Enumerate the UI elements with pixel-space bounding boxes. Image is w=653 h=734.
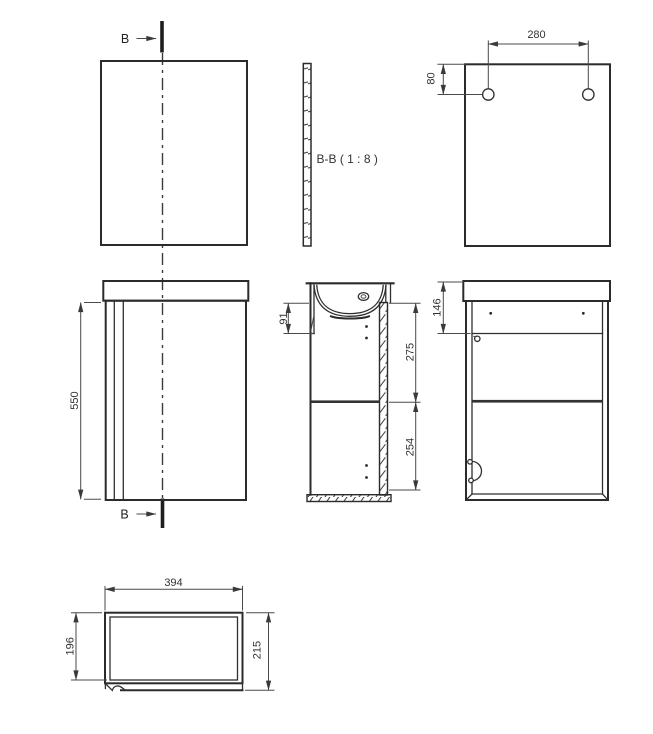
carcass-outline-top	[105, 613, 243, 684]
basin-rim-front	[103, 281, 248, 301]
dim-door-upper: 275	[389, 303, 421, 402]
section-cut-marker-bottom: B	[120, 499, 162, 529]
shelf-pin-hole	[365, 337, 368, 340]
screw-hole	[582, 312, 585, 315]
corner-bevel-left	[467, 494, 473, 500]
section-view-label: B-B ( 1 : 8 )	[317, 152, 378, 166]
section-strip	[303, 64, 311, 247]
cabinet-section-view: 91 275 254	[278, 283, 421, 501]
dim-hole-spacing-label: 280	[527, 29, 545, 41]
shelf-pin-hole	[365, 464, 368, 467]
shelf-pin-hole	[365, 476, 368, 479]
dim-hole-spacing: 280	[488, 29, 588, 89]
dim-cabinet-width: 394	[105, 577, 243, 611]
technical-drawing-sheet: B B B-B ( 1 : 8 ) 280 80	[0, 0, 653, 734]
dim-top-rail-label: 146	[431, 298, 443, 316]
basin-bowl-outer	[314, 286, 386, 317]
hinge-top	[473, 336, 480, 341]
bottom-panel-section	[307, 495, 391, 502]
section-cut-marker-top: B	[121, 21, 162, 53]
mirror-section-view: B-B ( 1 : 8 )	[303, 64, 378, 247]
shelf-section	[311, 400, 380, 403]
dim-cabinet-width-label: 394	[164, 577, 182, 589]
dim-overall-depth-label: 215	[252, 641, 264, 659]
shelf-rear	[472, 400, 603, 403]
screw-hole	[489, 312, 492, 315]
drawing-canvas: B B B-B ( 1 : 8 ) 280 80	[0, 0, 653, 734]
section-letter-top: B	[121, 32, 129, 46]
basin-rim-rear	[463, 281, 610, 301]
dim-door-lower: 254	[389, 402, 421, 490]
dim-inner-depth: 196	[65, 613, 108, 680]
hinge-bottom	[468, 460, 482, 483]
mirror-rear-view: 280 80	[426, 29, 611, 246]
dim-cabinet-height-label: 550	[69, 391, 81, 409]
dim-door-upper-label: 275	[405, 343, 417, 361]
dim-inner-depth-label: 196	[65, 637, 77, 655]
carcass-inner-top	[110, 617, 238, 680]
shelf-pin-hole	[365, 325, 368, 328]
dim-top-rail-height: 146	[431, 282, 470, 334]
mirror-outline	[101, 61, 247, 245]
overflow-hole	[358, 293, 368, 301]
section-letter-bottom: B	[120, 508, 128, 522]
dim-basin-front-height: 91	[278, 303, 315, 333]
rear-wall-section	[380, 303, 388, 496]
dim-basin-front-label: 91	[278, 312, 290, 324]
mounting-hole-left	[483, 89, 494, 100]
corner-bevel-right	[603, 494, 608, 500]
dim-cabinet-height: 550	[69, 303, 101, 500]
dim-door-lower-label: 254	[405, 438, 417, 456]
cabinet-top-view: 394 196 215	[65, 577, 275, 690]
cabinet-body-front	[106, 301, 246, 500]
cabinet-rear-view: 146	[431, 281, 610, 500]
dim-hole-offset-label: 80	[426, 72, 438, 84]
mirror-front-view	[101, 61, 247, 245]
dim-hole-top-offset: 80	[426, 64, 483, 94]
dim-overall-depth: 215	[245, 613, 275, 691]
basin-bowl-inner	[317, 286, 383, 314]
mounting-hole-right	[583, 89, 594, 100]
cabinet-front-view: 550	[69, 281, 248, 500]
